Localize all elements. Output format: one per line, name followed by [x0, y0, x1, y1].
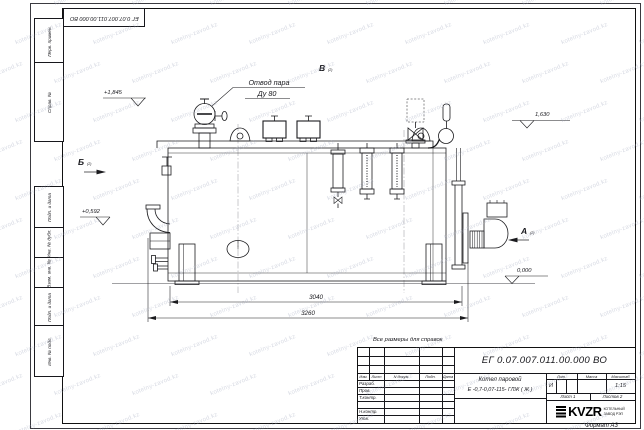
tb-sheets-cell: Листов 2 [590, 393, 635, 400]
tb-scale-value: 1:15 [606, 379, 635, 393]
tb-doc-number: ЕГ 0.07.007.011.00.000 ВО [454, 348, 635, 373]
view-label-a: А [521, 227, 527, 236]
kvzr-logo-text: KVZR [568, 404, 601, 419]
steam-outlet-valve [193, 88, 305, 149]
tb-row-tkontr: Т.контр. [359, 394, 384, 401]
left-valves [152, 157, 173, 271]
elevation-right-value: 1,630 [535, 113, 550, 119]
centerlines [238, 124, 404, 293]
tb-row-nkontr: Н.контр. [359, 408, 384, 415]
tb-col-list: Лист [369, 373, 384, 380]
elevation-top-value: +1,845 [104, 91, 122, 97]
water-column [331, 143, 345, 208]
left-elbow-pipe [146, 205, 170, 249]
dimension-3040: 3040 [309, 295, 323, 301]
tb-lit-value: И [546, 379, 556, 393]
view-label-v-ref: (2) [328, 69, 332, 73]
tb-line [358, 356, 454, 357]
tb-col-podp: Подп. [419, 373, 442, 380]
view-label-b-ref: (2) [87, 163, 91, 167]
view-label-v: В [319, 64, 325, 73]
tb-row-razrab: Разраб. [359, 380, 384, 387]
reference-note: Все размеры для справок [373, 338, 442, 344]
view-label-b: Б [78, 158, 84, 167]
company-name-line2: ЗАВОД РЭП [604, 412, 623, 416]
support-feet [175, 244, 446, 285]
tb-line [384, 348, 385, 423]
tb-mass-label: Масса [577, 373, 606, 379]
dimension-3260: 3260 [301, 311, 315, 317]
callout-steam-outlet-line1: Отвод пара [248, 79, 289, 86]
drawing-sheet: Отвод пара Ду 80 В (2) Б (2) А (2) +1,84… [0, 0, 644, 430]
tb-sheet-cell: Лист 1 [546, 393, 590, 400]
lifting-lugs [230, 128, 430, 141]
tb-col-izm: Изм. [358, 373, 369, 380]
format-label: Формат А3 [585, 423, 618, 429]
tb-line [556, 379, 557, 393]
tb-row-blank [359, 401, 384, 408]
tb-row-prov: Пров. [359, 387, 384, 394]
title-block: Изм. Лист N докум. Подп. Дата Разраб. Пр… [357, 347, 636, 424]
water-level-gauges [360, 143, 404, 199]
elevation-left-value: +0,592 [82, 210, 100, 216]
callout-steam-outlet-line2: Ду 80 [258, 90, 277, 97]
kvzr-logo-icon [556, 406, 566, 418]
tb-title-line2: Е -0,7-0,07-115- ГЛЖ ( Ж ) [454, 385, 546, 395]
burner-assembly [463, 200, 508, 263]
boiler-body [157, 141, 446, 281]
elevation-zero-value: 0,000 [517, 269, 532, 275]
tb-line [442, 348, 443, 423]
tb-line [419, 348, 420, 423]
tb-line [454, 398, 546, 399]
tb-row-utv: Утв. [359, 415, 384, 422]
tb-company-cell: KVZR КОТЕЛЬНЫЙ ЗАВОД РЭП [546, 400, 635, 423]
safety-valve-covers [263, 116, 320, 142]
view-label-a-ref: (2) [530, 232, 534, 236]
tb-line [566, 379, 567, 393]
tb-col-data: Дата [442, 373, 454, 380]
tb-title-line1: Котел паровой [454, 375, 546, 385]
tb-col-ndokum: N докум. [384, 373, 419, 380]
tb-line [358, 365, 454, 366]
company-name: КОТЕЛЬНЫЙ ЗАВОД РЭП [604, 407, 625, 416]
